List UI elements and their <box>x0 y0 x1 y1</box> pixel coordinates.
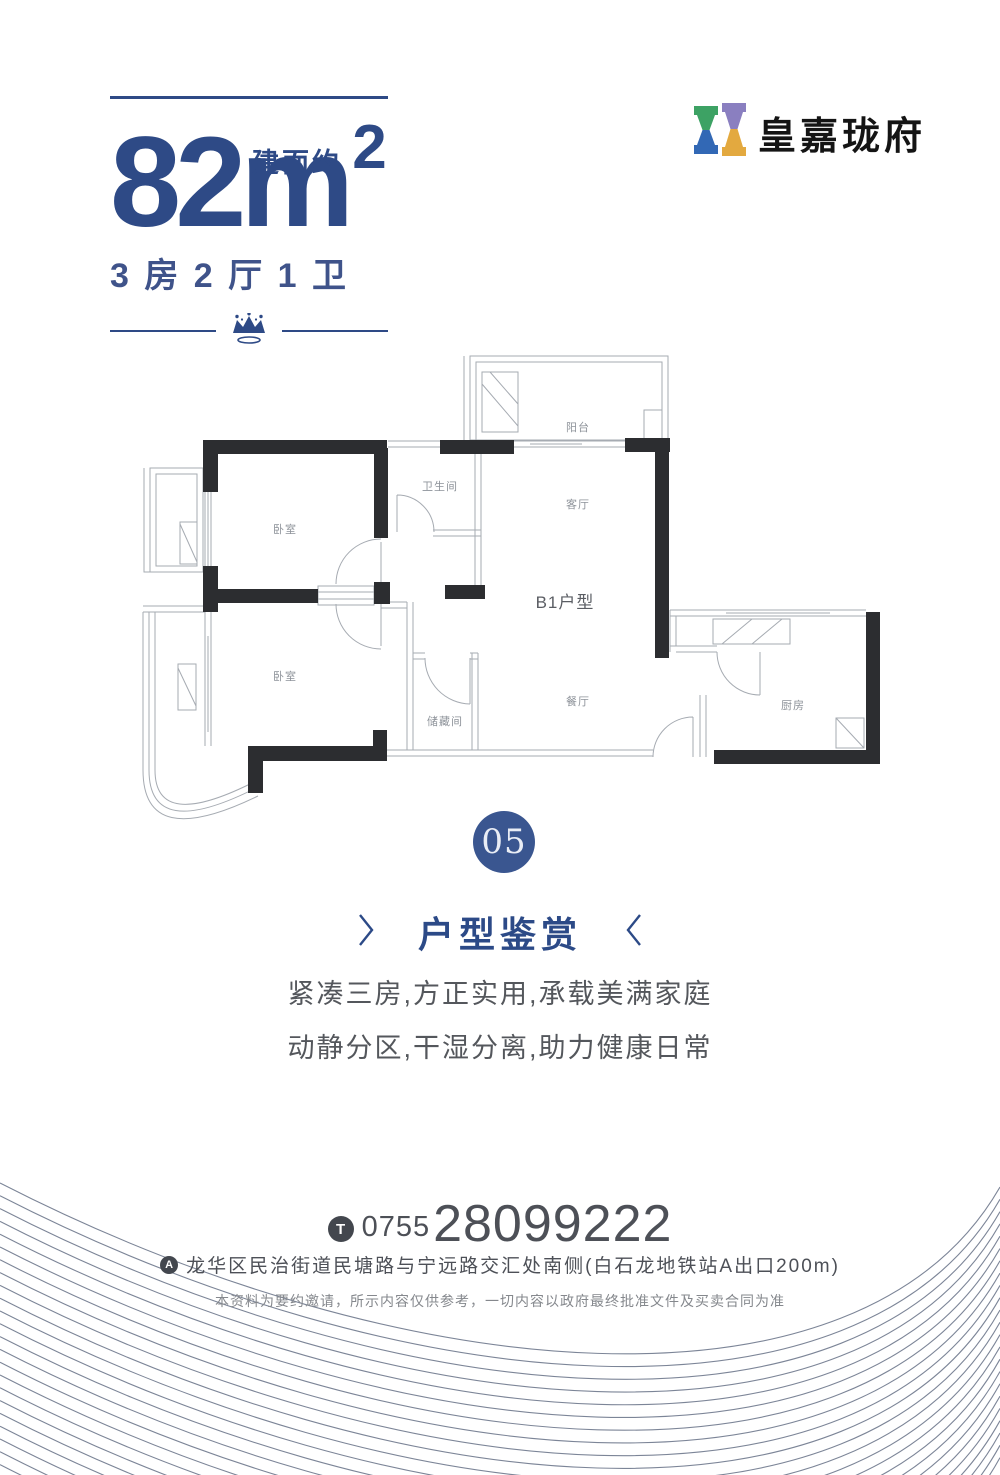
address-text: 龙华区民治街道民塘路与宁远路交汇处南侧(白石龙地铁站A出口200m) <box>186 1251 840 1278</box>
phone-number: 28099222 <box>433 1198 672 1250</box>
area-superscript: 2 <box>352 113 386 182</box>
description-line-1: 紧凑三房,方正实用,承载美满家庭 <box>0 972 1000 1011</box>
brand-logo-icon <box>692 100 748 165</box>
crown-icon <box>226 313 272 350</box>
room-label-kitchen: 厨房 <box>781 699 805 712</box>
brand-name: 皇嘉珑府 <box>758 105 926 160</box>
area-value: 82m2 <box>110 129 388 238</box>
room-label-balcony: 阳台 <box>566 420 590 434</box>
brand-logo: 皇嘉珑府 <box>692 100 926 165</box>
section-title: 户型鉴赏 <box>418 906 582 958</box>
crown-divider <box>110 313 388 350</box>
room-label-living: 客厅 <box>566 497 590 511</box>
address-row: A 龙华区民治街道民塘路与宁远路交汇处南侧(白石龙地铁站A出口200m) <box>0 1251 1000 1278</box>
phone-icon: T <box>328 1216 354 1242</box>
floor-plan-room-labels: 阳台 卫生间 客厅 卧室 卧室 储藏间 餐厅 厨房 <box>273 420 805 728</box>
area-approx-label: 建面约 <box>252 141 342 180</box>
area-header: 建面约 82m2 3 房 2 厅 1 卫 <box>110 96 388 350</box>
phone-area-code: 0755 <box>362 1211 431 1244</box>
section-number-badge: 05 <box>473 811 535 873</box>
section-title-row: 户型鉴赏 <box>0 906 1000 958</box>
room-label-dining: 餐厅 <box>566 694 590 708</box>
room-label-bath: 卫生间 <box>422 479 458 493</box>
room-label-storage: 储藏间 <box>427 714 463 728</box>
room-label-bedroom2: 卧室 <box>273 669 297 683</box>
description-line-2: 动静分区,干湿分离,助力健康日常 <box>0 1026 1000 1065</box>
floor-plan: 阳台 卫生间 客厅 卧室 卧室 储藏间 餐厅 厨房 B1户型 <box>130 346 890 876</box>
unit-type-label: B1户型 <box>536 593 595 612</box>
room-label-bedroom1: 卧室 <box>273 522 297 536</box>
disclaimer-text: 本资料为要约邀请，所示内容仅供参考，一切内容以政府最终批准文件及买卖合同为准 <box>0 1291 1000 1311</box>
chevron-right-icon <box>358 913 374 952</box>
address-icon: A <box>160 1256 178 1274</box>
layout-summary: 3 房 2 厅 1 卫 <box>110 248 388 297</box>
phone-row: T 0755 28099222 <box>0 1198 1000 1250</box>
chevron-left-icon <box>626 913 642 952</box>
section-number: 05 <box>481 822 526 862</box>
header-top-rule <box>110 96 388 99</box>
